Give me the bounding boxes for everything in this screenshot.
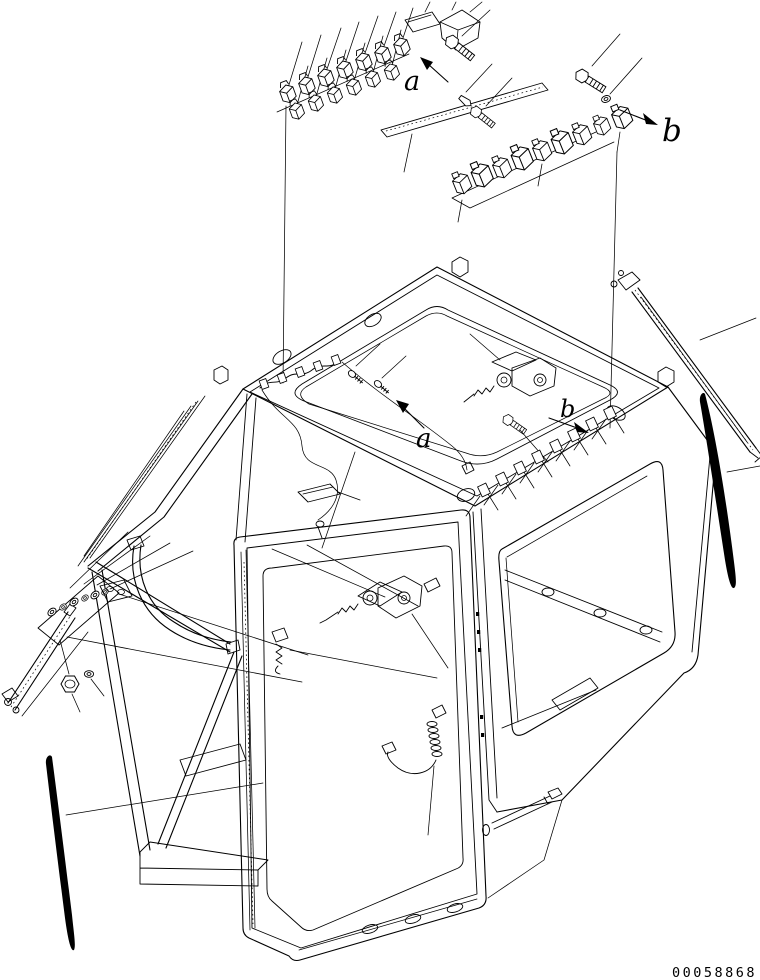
roof-tab bbox=[214, 366, 228, 384]
roof-tab bbox=[452, 257, 468, 277]
diagram-page: a b bbox=[0, 0, 760, 980]
washer-icon bbox=[89, 590, 100, 601]
connector-icon bbox=[490, 153, 513, 180]
left-wiper-assembly bbox=[2, 532, 308, 950]
wire-clip-icon bbox=[353, 47, 374, 72]
wire-clip-icon bbox=[296, 71, 317, 96]
front-face-edge bbox=[322, 452, 355, 548]
right-wiper-assembly bbox=[611, 271, 760, 589]
right-wiper-blade bbox=[700, 393, 760, 588]
bolt-dot bbox=[477, 630, 480, 634]
wire-clip-icon bbox=[372, 40, 393, 65]
front-corner-post bbox=[92, 570, 268, 886]
leader-lines bbox=[283, 106, 617, 428]
wiper-arm bbox=[2, 604, 88, 716]
washer-icon bbox=[601, 94, 612, 103]
door-latch-spring bbox=[272, 628, 437, 678]
washer-leader bbox=[610, 58, 642, 94]
pin-icon bbox=[458, 94, 473, 108]
motor-leaders bbox=[272, 545, 418, 606]
hex-bolt-icon bbox=[573, 67, 607, 95]
right-wiper-arm bbox=[611, 271, 760, 463]
screw-icon bbox=[347, 369, 365, 385]
callout-a-top: a bbox=[404, 66, 420, 97]
washer-icon bbox=[80, 594, 89, 603]
bolt-icon bbox=[468, 104, 496, 129]
front-a-pillar bbox=[236, 394, 256, 542]
windshield-frame bbox=[78, 389, 252, 652]
callout-b-top: b bbox=[662, 113, 682, 149]
roof-tab bbox=[658, 367, 674, 387]
b-pillar bbox=[473, 509, 497, 812]
rear-right-face bbox=[497, 387, 716, 812]
washer-icon bbox=[84, 671, 93, 678]
roof-opening bbox=[295, 307, 618, 465]
cab-structure bbox=[78, 257, 716, 961]
connector-icon bbox=[468, 158, 495, 189]
grab-handle bbox=[127, 536, 240, 654]
window-slide-rail bbox=[502, 570, 662, 728]
connector-icon bbox=[591, 112, 612, 137]
screw-leaders bbox=[356, 344, 406, 378]
roof-wiper-motor bbox=[464, 334, 556, 402]
front-harness bbox=[259, 355, 474, 520]
roof-hole bbox=[455, 486, 476, 503]
callout-b-roof: b bbox=[560, 395, 575, 423]
bolt-dot bbox=[478, 648, 481, 652]
wiring-clip-row-left: a bbox=[277, 2, 548, 137]
bolt-leader bbox=[592, 34, 620, 66]
bolt-dot bbox=[480, 715, 483, 719]
door-stay-rod bbox=[492, 788, 562, 829]
right-window-inner bbox=[506, 476, 647, 722]
connector-icon bbox=[450, 169, 473, 196]
connector-icon bbox=[530, 136, 553, 163]
bolt-icon bbox=[501, 413, 528, 436]
washer-icon bbox=[68, 597, 79, 608]
bolt-leader bbox=[462, 10, 490, 36]
pivot-nut bbox=[61, 676, 79, 692]
washer-icon bbox=[46, 607, 57, 618]
pin-leader bbox=[466, 64, 492, 92]
connector-icon bbox=[609, 101, 635, 131]
roof-parts: a b bbox=[259, 334, 624, 520]
bolt-dot bbox=[476, 612, 479, 616]
view-arrow-a-top bbox=[420, 57, 448, 82]
connector-row-right: b bbox=[450, 34, 682, 222]
bolt-icon bbox=[443, 33, 476, 63]
coil-cable bbox=[382, 705, 446, 835]
wire-clip-icon bbox=[334, 55, 355, 80]
bracket-plate bbox=[405, 12, 440, 32]
door-wiper-motor bbox=[320, 576, 448, 668]
wire-clip-icon bbox=[315, 63, 336, 88]
cab-exploded-parts-diagram: a b bbox=[0, 0, 760, 980]
bolt-dot bbox=[481, 733, 484, 737]
connector-icon bbox=[508, 141, 535, 172]
door-frame bbox=[234, 510, 486, 961]
screw-icon bbox=[373, 379, 391, 395]
callout-a-roof: a bbox=[416, 424, 432, 454]
roof-hole bbox=[362, 311, 383, 330]
connector-icon bbox=[570, 120, 593, 147]
left-wiper-blade bbox=[46, 755, 263, 950]
wire-clip-icon bbox=[277, 79, 298, 104]
part-number: 00058868 bbox=[672, 965, 757, 980]
roof-opening-lip bbox=[301, 313, 610, 456]
door-parts bbox=[272, 484, 448, 835]
roof-edge-inner-line bbox=[250, 275, 659, 496]
